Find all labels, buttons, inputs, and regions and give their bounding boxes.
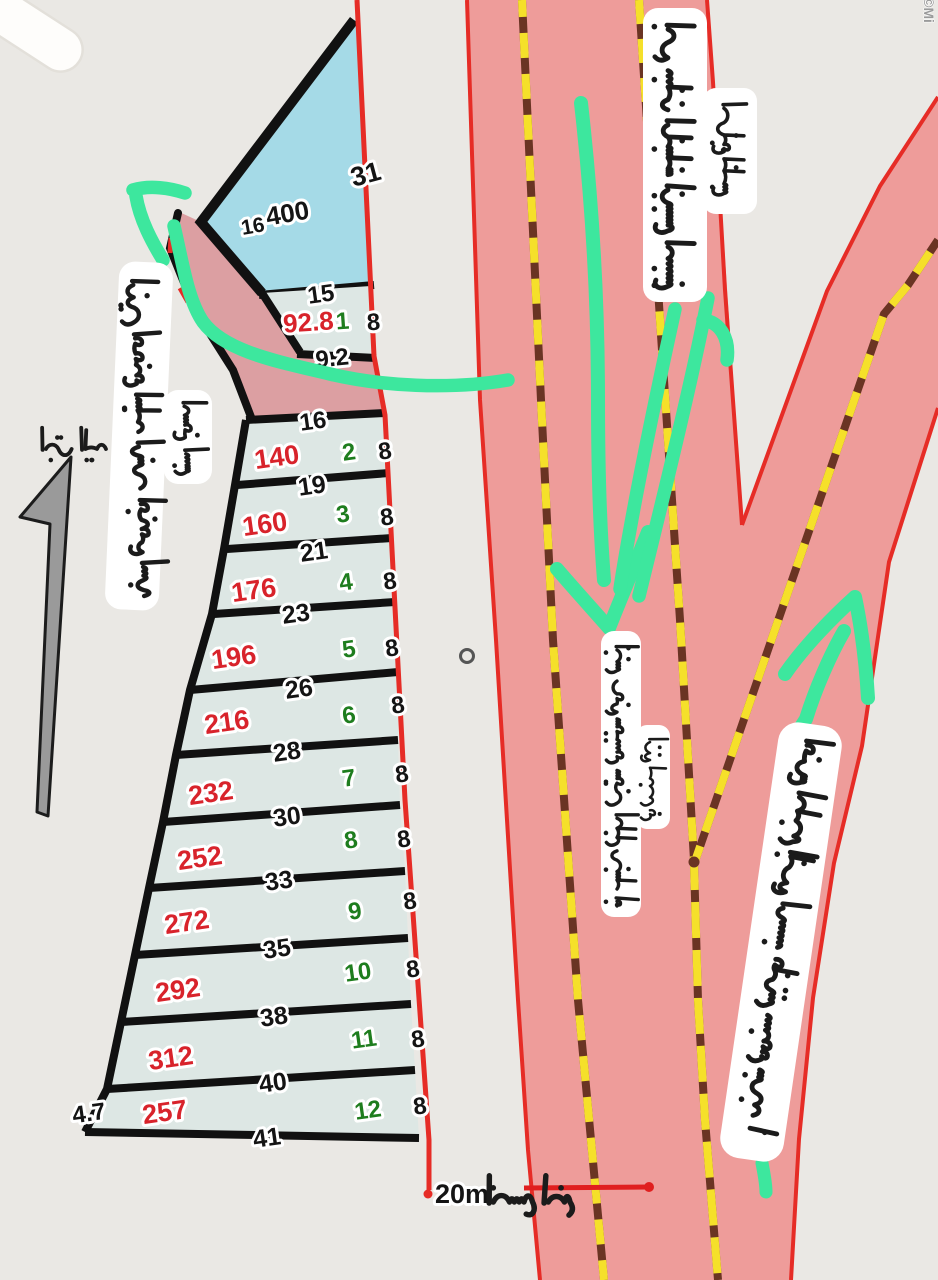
svg-text:23: 23: [280, 598, 311, 630]
svg-text:38: 38: [258, 1001, 290, 1033]
svg-text:21: 21: [298, 536, 330, 568]
svg-text:16: 16: [298, 406, 328, 436]
svg-text:20m: 20m: [435, 1179, 489, 1209]
svg-text:216: 216: [202, 704, 251, 740]
svg-text:312: 312: [146, 1040, 195, 1076]
svg-text:196: 196: [209, 639, 258, 675]
svg-text:176: 176: [229, 572, 278, 608]
svg-text:140: 140: [252, 439, 301, 475]
svg-text:16: 16: [239, 213, 266, 240]
svg-text:1: 1: [335, 308, 350, 336]
svg-text:40: 40: [257, 1067, 288, 1099]
svg-text:160: 160: [240, 506, 289, 542]
svg-text:30: 30: [271, 801, 302, 833]
svg-text:257: 257: [140, 1094, 189, 1130]
svg-text:11: 11: [350, 1024, 379, 1054]
svg-text:4.7: 4.7: [71, 1098, 108, 1129]
svg-text:26: 26: [283, 673, 314, 705]
svg-text:35: 35: [261, 933, 293, 965]
svg-text:92.8: 92.8: [282, 305, 335, 338]
svg-text:28: 28: [271, 736, 303, 768]
svg-text:292: 292: [153, 972, 202, 1008]
svg-text:10: 10: [343, 957, 373, 987]
svg-text:272: 272: [162, 904, 211, 940]
svg-text:19: 19: [296, 470, 327, 502]
svg-text:12: 12: [353, 1095, 383, 1125]
svg-text:252: 252: [175, 840, 224, 876]
svg-text:41: 41: [251, 1122, 283, 1154]
svg-text:33: 33: [263, 865, 294, 897]
svg-text:8: 8: [366, 309, 381, 337]
svg-text:232: 232: [186, 775, 235, 811]
svg-text:©Mi: ©Mi: [921, 0, 937, 23]
